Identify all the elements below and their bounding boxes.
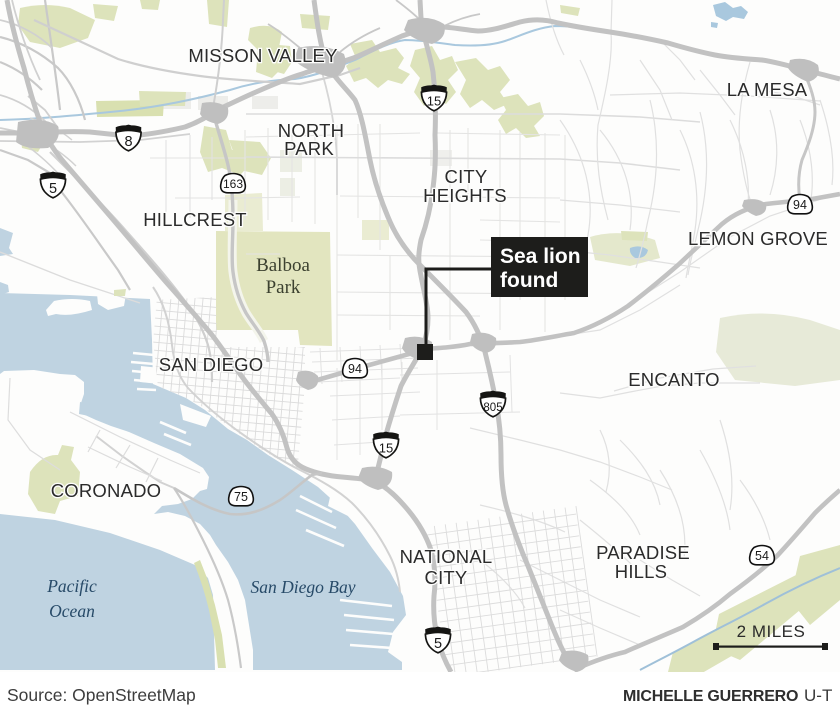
svg-text:CITY: CITY	[425, 567, 468, 588]
svg-text:2 MILES: 2 MILES	[737, 622, 806, 641]
svg-text:HEIGHTS: HEIGHTS	[423, 185, 507, 206]
svg-text:163: 163	[223, 177, 243, 191]
svg-text:Sea lion: Sea lion	[500, 245, 581, 268]
svg-text:found: found	[500, 269, 558, 292]
svg-text:NATIONAL: NATIONAL	[400, 546, 493, 567]
svg-text:75: 75	[234, 490, 248, 504]
svg-text:Park: Park	[266, 277, 301, 298]
svg-text:CITY: CITY	[445, 166, 488, 187]
svg-text:U-T: U-T	[804, 686, 832, 705]
svg-text:PARK: PARK	[284, 138, 334, 159]
svg-text:HILLS: HILLS	[615, 561, 667, 582]
svg-text:Source: OpenStreetMap: Source: OpenStreetMap	[7, 685, 196, 705]
svg-text:SAN DIEGO: SAN DIEGO	[159, 354, 264, 375]
svg-text:5: 5	[49, 181, 57, 197]
svg-text:CORONADO: CORONADO	[51, 480, 162, 501]
svg-text:LEMON GROVE: LEMON GROVE	[688, 228, 828, 249]
svg-text:ENCANTO: ENCANTO	[628, 369, 720, 390]
svg-text:Balboa: Balboa	[256, 255, 310, 276]
svg-text:805: 805	[483, 402, 502, 414]
svg-text:San Diego Bay: San Diego Bay	[251, 577, 356, 597]
svg-text:15: 15	[427, 94, 441, 109]
svg-text:8: 8	[124, 134, 132, 150]
svg-text:54: 54	[755, 549, 769, 563]
svg-text:Ocean: Ocean	[49, 601, 95, 621]
svg-text:5: 5	[434, 636, 442, 652]
svg-text:94: 94	[348, 362, 362, 376]
svg-text:15: 15	[379, 441, 393, 456]
svg-text:94: 94	[793, 198, 807, 212]
svg-text:Pacific: Pacific	[46, 576, 97, 596]
svg-text:HILLCREST: HILLCREST	[143, 209, 247, 230]
svg-text:MICHELLE GUERRERO: MICHELLE GUERRERO	[623, 688, 798, 705]
svg-text:LA MESA: LA MESA	[727, 79, 808, 100]
svg-text:PARADISE: PARADISE	[596, 542, 690, 563]
svg-text:MISSON VALLEY: MISSON VALLEY	[188, 45, 337, 66]
